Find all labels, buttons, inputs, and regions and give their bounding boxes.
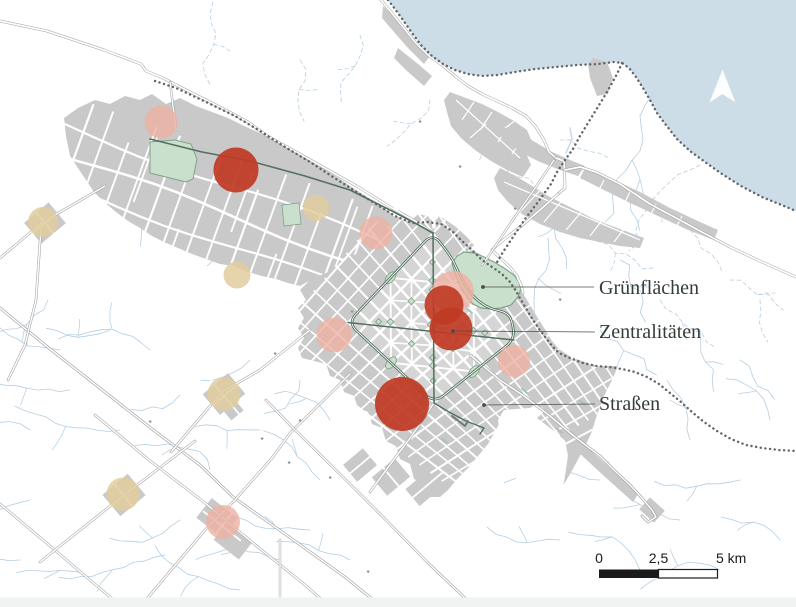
svg-text:5 km: 5 km [716,550,746,566]
svg-text:2,5: 2,5 [649,550,669,566]
svg-text:Grünflächen: Grünflächen [599,277,699,299]
svg-text:Zentralitäten: Zentralitäten [599,321,701,343]
svg-text:0: 0 [595,550,603,566]
svg-text:Straßen: Straßen [599,393,660,415]
